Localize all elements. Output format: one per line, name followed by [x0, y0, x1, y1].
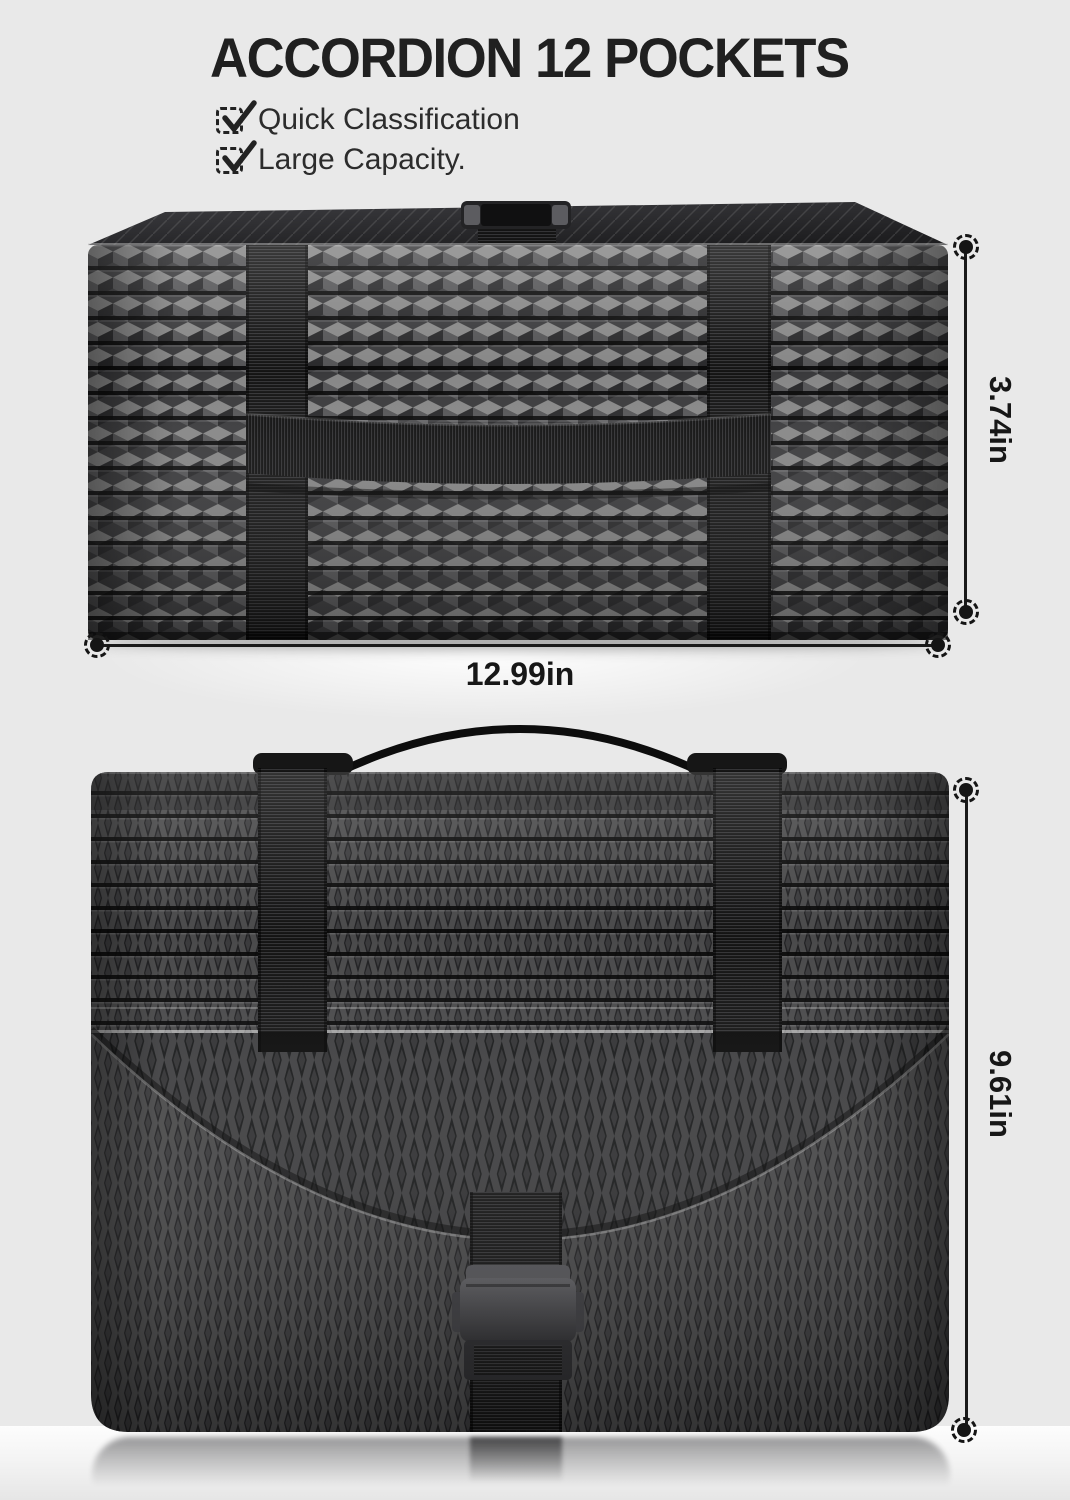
dimension-endpoint-dot	[951, 1417, 977, 1443]
product-banner: ACCORDION 12 POCKETS Quick Classificatio…	[0, 0, 1070, 1500]
feature-item: Large Capacity.	[216, 140, 520, 180]
page-title: ACCORDION 12 POCKETS	[210, 30, 849, 86]
dimension-width-label: 12.99in	[466, 656, 575, 693]
checkbox-checked-icon	[216, 107, 243, 134]
feature-item: Quick Classification	[216, 100, 520, 140]
dimension-height-label: 9.61in	[982, 1050, 1018, 1138]
feature-label: Large Capacity.	[258, 143, 466, 177]
checkbox-checked-icon	[216, 147, 243, 174]
strap-reflection	[470, 1437, 562, 1487]
dimension-endpoint-dot	[84, 632, 110, 658]
dimension-endpoint-dot	[953, 234, 979, 260]
feature-label: Quick Classification	[258, 103, 520, 137]
carry-handle	[335, 729, 705, 774]
feature-list: Quick Classification Large Capacity.	[216, 100, 520, 180]
dimension-line	[965, 790, 968, 1430]
bag-lighting	[91, 772, 949, 1432]
dimension-line	[97, 644, 938, 647]
check-icon	[220, 99, 257, 135]
front-lighting	[88, 245, 948, 640]
dimension-depth-label: 3.74in	[982, 376, 1018, 464]
product-top-view	[83, 192, 951, 654]
dimension-endpoint-dot	[953, 777, 979, 803]
dimension-endpoint-dot	[953, 599, 979, 625]
dimension-endpoint-dot	[925, 632, 951, 658]
product-front-view	[83, 718, 955, 1450]
dimension-line	[964, 248, 967, 612]
check-icon	[220, 139, 257, 175]
